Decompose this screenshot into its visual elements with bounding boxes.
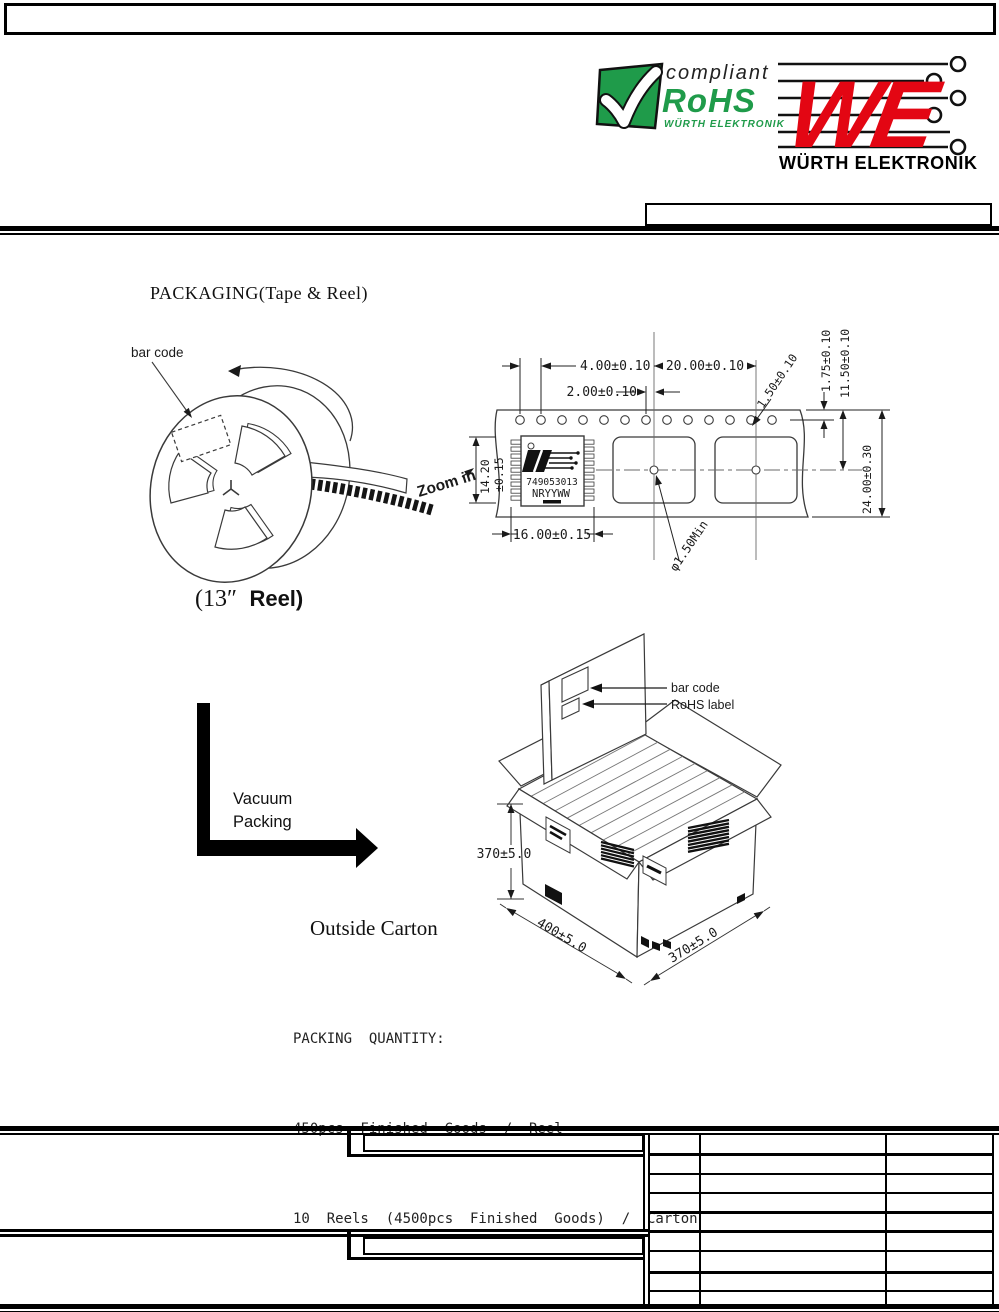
rotation-arrowhead — [228, 365, 241, 377]
we-logo: WE WÜRTH ELEKTRONIK — [772, 56, 987, 176]
carton-rohs-label: RoHS label — [671, 698, 734, 712]
revision-row-2 — [650, 1173, 992, 1175]
dim-pocket-len-tol: ±0.15 — [492, 457, 506, 492]
we-monogram: WE — [780, 62, 949, 168]
doc-number-box — [645, 203, 992, 226]
rohs-logo: compliant RoHS WÜRTH ELEKTRONIK — [590, 58, 785, 138]
bottom-rule-thick — [0, 1304, 999, 1309]
rohs-subtitle-text: WÜRTH ELEKTRONIK — [664, 119, 785, 130]
carton-barcode-label: bar code — [671, 681, 720, 695]
revision-row-5 — [650, 1230, 992, 1233]
footer-subbox-b — [363, 1237, 644, 1255]
dim-tape-width: 24.00±0.30 — [860, 445, 874, 514]
component-date-code: NRYYWW — [532, 488, 571, 500]
header-rule-thick — [0, 226, 999, 231]
carton-dim-height: 370±5.0 — [477, 847, 532, 862]
vacuum-label-line2: Packing — [233, 811, 292, 834]
dim-pocket-len: 14.20 — [478, 459, 492, 494]
packing-quantity-block: PACKING QUANTITY: 450pcs Finished Goods … — [293, 964, 698, 1264]
carton-caption: Outside Carton — [310, 916, 438, 941]
rohs-name-text: RoHS — [662, 82, 756, 120]
dim-pocket-pitch: 20.00±0.10 — [666, 359, 744, 374]
dim-hole-pitch: 4.00±0.10 — [580, 359, 650, 374]
dim-pocket-width: 16.00±0.15 — [513, 528, 591, 543]
footer-blockB-right-border — [643, 1236, 645, 1304]
revision-row-4 — [650, 1211, 992, 1214]
component-part-number: 749053013 — [526, 477, 577, 488]
footer-blockA-right-border — [643, 1133, 645, 1229]
revision-row-3 — [650, 1192, 992, 1194]
carton-figure: bar code RoHS label 370±5.0 400±5.0 370±… — [450, 618, 800, 990]
pocket-center-hole — [650, 466, 658, 474]
dim-hole-to-pocket: 2.00±0.10 — [567, 385, 637, 400]
section-title: PACKAGING(Tape & Reel) — [150, 283, 368, 304]
dim-edge-to-center: 11.50±0.10 — [838, 329, 852, 398]
revision-row-1 — [650, 1153, 992, 1156]
dim-hole-dia: 1.50±0.10 — [754, 351, 800, 411]
footer-rule-thick — [0, 1126, 999, 1131]
footer-divider-1 — [0, 1229, 648, 1232]
revision-col-line-2 — [885, 1135, 887, 1306]
pocket-center-hole — [752, 466, 760, 474]
packing-title: PACKING QUANTITY: — [293, 1024, 698, 1054]
reel-caption-reel: Reel) — [249, 586, 303, 611]
dim-center-hole: φ1.50Min — [667, 518, 711, 574]
revision-row-8 — [650, 1290, 992, 1292]
revision-row-6 — [650, 1250, 992, 1252]
reel-caption-size: (13″ — [195, 586, 237, 612]
reel-figure: bar code Zoom in — [110, 332, 490, 622]
header-rule-thin — [0, 233, 999, 235]
vacuum-packing-label: Vacuum Packing — [233, 788, 292, 834]
tape-figure: 749053013 NRYYWW 4.00±0.10 2.00±0.10 20.… — [440, 320, 900, 585]
we-logo-name: WÜRTH ELEKTRONIK — [779, 153, 977, 173]
revision-table — [648, 1133, 994, 1308]
vacuum-arrow-horizontal — [197, 840, 357, 856]
top-header-box — [4, 3, 996, 35]
revision-row-7 — [650, 1271, 992, 1274]
dim-edge-to-hole: 1.75±0.10 — [819, 330, 833, 392]
footer-subbox-a — [363, 1134, 644, 1152]
footer-subbox-b-underline — [347, 1257, 645, 1260]
component-graphic: 749053013 NRYYWW — [511, 436, 594, 506]
datasheet-page: { "logos": { "rohs": { "compliant": "com… — [0, 0, 999, 1312]
reel-barcode-label: bar code — [131, 345, 184, 360]
vacuum-label-line1: Vacuum — [233, 788, 292, 811]
sprocket-holes — [516, 416, 777, 425]
vacuum-arrowhead — [356, 828, 378, 868]
carton-dim-width: 400±5.0 — [534, 916, 589, 957]
footer-tab-b — [347, 1231, 351, 1259]
vacuum-arrow-vertical — [197, 703, 210, 856]
footer-subbox-a-underline — [347, 1154, 645, 1157]
revision-col-line-1 — [699, 1135, 701, 1306]
footer-tab-a — [347, 1128, 351, 1155]
reel-caption: (13″ Reel) — [195, 586, 303, 613]
